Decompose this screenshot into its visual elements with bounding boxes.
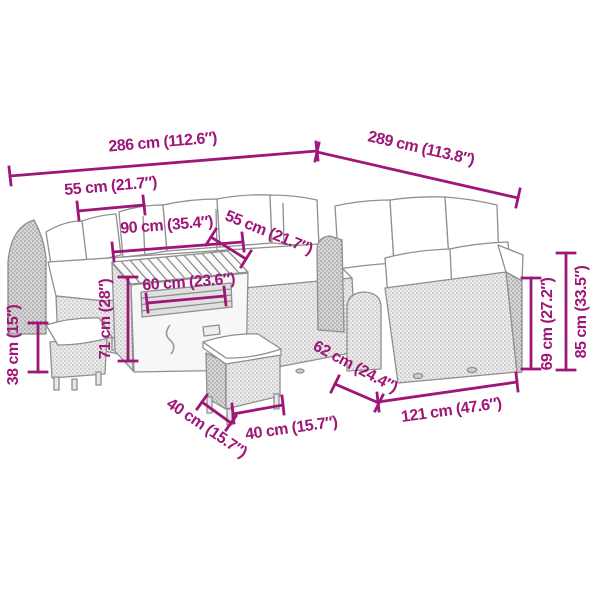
furniture-dimension-diagram: 286 cm (112.6″) 289 cm (113.8″) 55 cm (2…	[0, 0, 600, 600]
dim-back-width-label: 286 cm (112.6″)	[108, 130, 218, 156]
table-latch	[203, 325, 220, 336]
dim-right-width: 289 cm (113.8″)	[315, 128, 520, 207]
right-wing-back-panel	[385, 272, 517, 383]
dim-overall-height: 85 cm (33.5″)	[557, 253, 590, 370]
rear-right-armrest	[317, 236, 344, 332]
dim-backrest-height: 69 cm (27.2″)	[522, 277, 556, 370]
dim-right-width-label: 289 cm (113.8″)	[366, 128, 476, 169]
dim-stool-height-label: 38 cm (15″)	[5, 305, 22, 386]
dim-stool-width-label: 40 cm (15.7″)	[244, 414, 338, 444]
diagram-canvas: 286 cm (112.6″) 289 cm (113.8″) 55 cm (2…	[0, 0, 600, 600]
dim-left-seat-width: 55 cm (21.7″)	[64, 174, 158, 220]
dim-right-sofa-length-label: 121 cm (47.6″)	[400, 395, 503, 426]
dim-table-height-label: 71 cm (28″)	[97, 279, 114, 360]
dim-overall-height-label: 85 cm (33.5″)	[573, 265, 590, 358]
dim-back-width: 286 cm (112.6″)	[9, 130, 318, 185]
dim-backrest-height-label: 69 cm (27.2″)	[539, 277, 556, 370]
